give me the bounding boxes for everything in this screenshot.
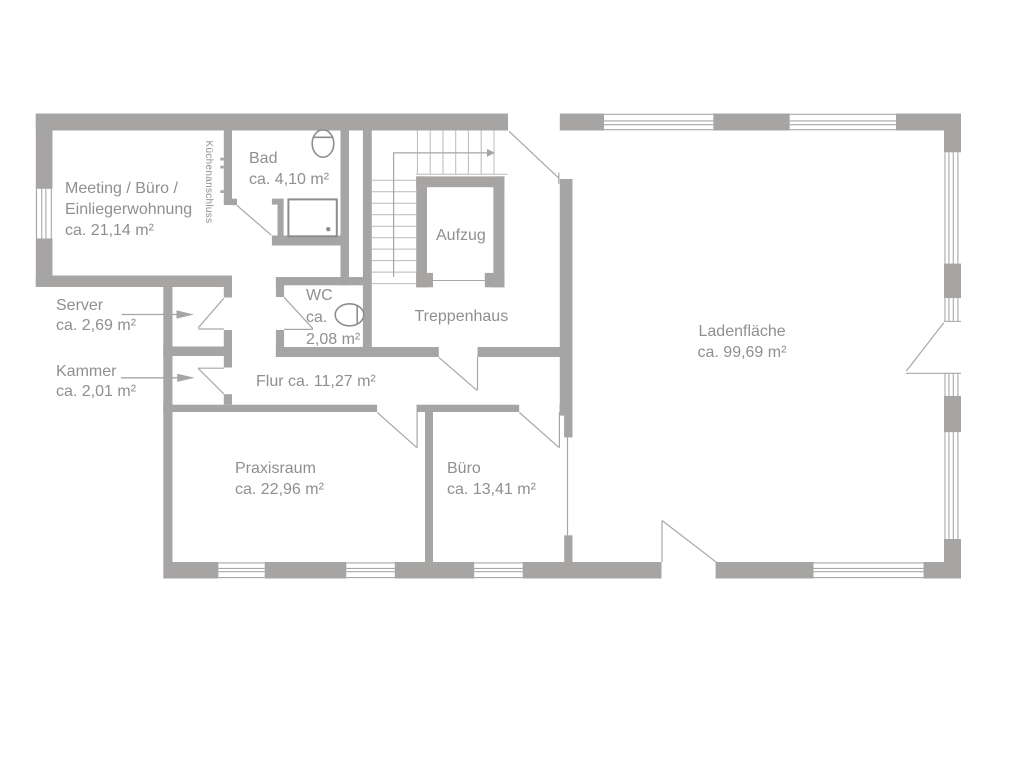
svg-text:Kammer: Kammer (56, 363, 117, 380)
svg-text:ca. 13,41 m²: ca. 13,41 m² (447, 481, 537, 498)
svg-text:Flur ca. 11,27 m²: Flur ca. 11,27 m² (256, 373, 376, 390)
svg-text:Bad: Bad (249, 150, 277, 167)
svg-text:Küchenanschluss: Küchenanschluss (203, 141, 214, 224)
svg-text:Meeting / Büro /: Meeting / Büro / (65, 180, 179, 197)
svg-text:Einliegerwohnung: Einliegerwohnung (65, 201, 192, 218)
svg-text:ca. 4,10 m²: ca. 4,10 m² (249, 171, 330, 188)
svg-text:Ladenfläche: Ladenfläche (699, 323, 786, 340)
svg-text:Treppenhaus: Treppenhaus (415, 308, 509, 325)
svg-text:Server: Server (56, 297, 104, 314)
svg-text:ca. 2,69 m²: ca. 2,69 m² (56, 317, 137, 334)
svg-text:ca.: ca. (306, 309, 327, 326)
svg-text:WC: WC (306, 287, 333, 304)
svg-text:2,08 m²: 2,08 m² (306, 331, 361, 348)
svg-text:ca. 21,14 m²: ca. 21,14 m² (65, 222, 155, 239)
svg-text:ca. 22,96 m²: ca. 22,96 m² (235, 481, 325, 498)
svg-text:Praxisraum: Praxisraum (235, 460, 316, 477)
svg-text:Aufzug: Aufzug (436, 227, 486, 244)
svg-text:ca. 2,01 m²: ca. 2,01 m² (56, 383, 137, 400)
svg-text:Büro: Büro (447, 460, 481, 477)
svg-text:ca. 99,69 m²: ca. 99,69 m² (698, 344, 788, 361)
